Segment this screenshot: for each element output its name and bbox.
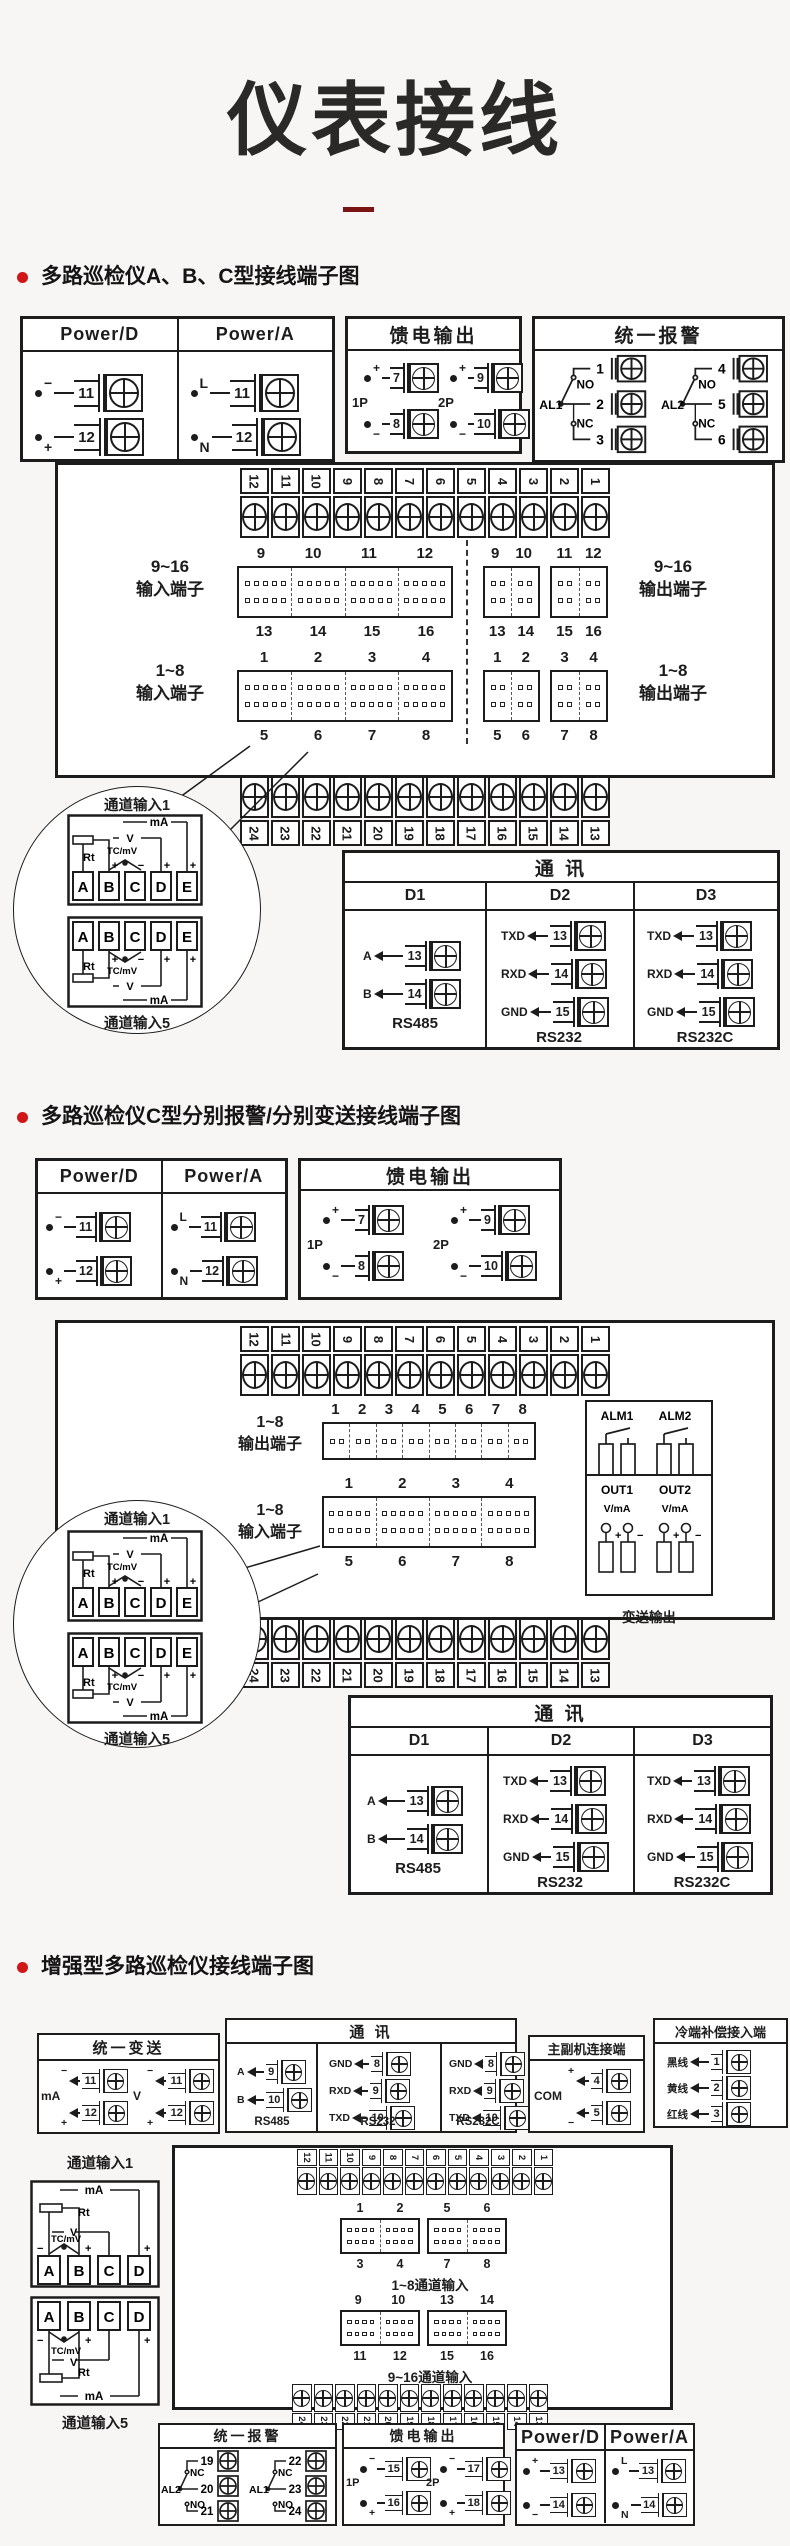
page-title: 仪表接线 [0,56,790,172]
title-underline [343,207,374,212]
s3-alarm-al2: AL2 [161,2484,181,2496]
screw-icon [335,1625,360,1653]
terminal-unit: 3 [491,2149,511,2195]
ma-label: mA [150,817,169,829]
screw-icon [508,2390,525,2407]
s3-feed-2p-label: 2P [426,2477,439,2489]
screw-icon [267,422,297,452]
screw-icon [320,2173,337,2190]
screw-icon [436,1828,459,1851]
ch-term-d: D [156,1595,167,1612]
terminal-unit: 8 [364,1326,393,1396]
terminal-unit: 19 [395,1618,424,1688]
ch-term-d: D [134,2263,145,2280]
screw-icon [459,503,484,531]
s1-in916-label: 9~16输入端子 [108,556,232,602]
s1-comm-rxd-14: RXD14 [499,959,607,989]
s1-comm-a-13: A13 [361,941,461,971]
s2-comm-txd-13b: TXD13 [645,1766,750,1796]
s3-cold-red-3: 红线3 [665,2102,751,2126]
screw-icon [107,2073,124,2090]
s3-ch18-connector-a [340,2218,420,2254]
s3-comm-rxd-9: RXD9 [327,2079,410,2103]
screw-icon [391,2056,408,2073]
terminal-unit: 6 [426,1326,455,1396]
s1-comm-rs232: RS232 [493,1029,625,1046]
screw-icon [411,2461,428,2478]
screw-icon [727,963,750,986]
terminal-unit: 2 [550,468,579,538]
s3-power-d-13: +13 [523,2459,596,2483]
ma-label: mA [150,995,169,1007]
terminal-unit: 12 [240,468,269,538]
screw-icon [105,1216,128,1239]
s3-alarm-al1-nc: NC [278,2468,292,2479]
screw-icon [335,1361,360,1389]
s3-channel5-label: 通道输入5 [30,2412,160,2433]
ch-term-c: C [130,879,141,896]
screw-icon [521,1625,546,1653]
s1-alarm-term-2: 2 [596,397,604,412]
s3-comm-box: 通 讯 A9 B10 RS485 GND8 RXD9 TXD10 RS232 G… [225,2018,517,2133]
s3-alarm-term-20: 20 [201,2484,214,2496]
terminal-unit: 6 [426,468,455,538]
s3-link-box: 主副机连接端 COM +4 −5 [528,2035,645,2133]
terminal-unit: 11 [271,468,300,538]
s3-comm-a-9: A9 [235,2060,306,2084]
s1-out916-label: 9~16输出端子 [618,556,728,602]
s1-feed-terminal-7: +7 [364,363,439,393]
screw-icon [363,2173,380,2190]
v-label: V [126,1549,134,1561]
screw-icon [530,2390,547,2407]
screw-icon [582,1001,605,1024]
terminal-unit: 10 [302,1326,331,1396]
ch-term-c: C [104,2263,115,2280]
screw-icon [459,1361,484,1389]
polarity: + [615,1530,621,1542]
s3-alarm-term-19: 19 [201,2456,214,2468]
ch-term-c: C [130,1645,141,1662]
screw-icon [108,2105,125,2122]
ch-term-a: A [78,929,89,946]
terminal-unit: 8 [364,468,393,538]
screw-icon [465,2390,482,2407]
s2-power-a-col: L11 N12 [163,1194,286,1299]
screw-icon [335,503,360,531]
polarity: + [164,954,170,966]
s1-feed-box: 馈电输出 1P +7 −8 2P +9 −10 [345,316,522,454]
screw-icon [379,2390,396,2407]
screw-icon [412,413,435,436]
s3-alarm-term-22: 22 [289,2456,302,2468]
s1-power-d-title: Power/D [23,319,179,350]
polarity: + [164,1670,170,1682]
bullet-icon [17,1962,28,1973]
screw-icon [193,2073,210,2090]
polarity: − [37,2335,43,2347]
screw-icon [487,2390,504,2407]
screw-icon [105,1260,128,1283]
s1-alarm-al1-no: NO [577,378,595,391]
s1-comm-d2: D2 [485,883,633,911]
ch-term-b: B [74,2263,85,2280]
divider [487,1756,489,1892]
s3-feed-box: 馈电输出 1P −15 +16 2P −17 +18 [342,2423,505,2526]
screw-icon [242,503,267,531]
s2-comm-d2: D2 [487,1728,633,1756]
terminal-unit: 10 [302,468,331,538]
screw-icon [583,783,608,811]
ch-term-c: C [130,1595,141,1612]
s3-alarm-al2-nc: NC [190,2468,204,2479]
terminal-unit: 9 [333,1326,362,1396]
s3-trans-v-11: −11 [145,2069,214,2093]
s1-power-d-terminal-11: −11 [35,374,143,412]
terminal-unit: 2 [550,1326,579,1396]
polarity: + [190,954,196,966]
screw-icon [397,1361,422,1389]
s1-comm-txd-13b: TXD13 [645,921,752,951]
screw-icon [728,1001,751,1024]
s2-in18-label: 1~8输入端子 [222,1500,318,1543]
v-label: V [70,2357,78,2369]
ch-term-e: E [182,1595,192,1612]
s2-comm-gnd-15: GND15 [501,1842,609,1872]
s3-alarm-box: 统一报警 AL2 NC NO 19 20 21 AL1 N [158,2423,337,2526]
screw-icon [273,1625,298,1653]
screw-icon [336,2390,353,2407]
s3-comm-rs232c: RS232C [443,2116,513,2128]
screw-icon [335,783,360,811]
s1-out916-connector-a [483,566,540,618]
screw-icon [731,2106,748,2123]
s3-alarm-al1: AL1 [249,2484,269,2496]
polarity: + [190,1670,196,1682]
s1-feed-1p-label: 1P [352,395,368,410]
s1-alarm-term-5: 5 [718,397,726,412]
s1-in916-bottom-numbers: 13141516 [237,622,453,640]
s2-feed-box: 馈电输出 1P +7 −8 2P +9 −10 [298,1158,562,1300]
s2-comm-a-13: A13 [365,1786,463,1816]
screw-icon [428,1361,453,1389]
s3-ch916-bot-a: 1112 [340,2348,420,2364]
s1-out916-top-numbers-a: 910 [483,544,540,562]
s2-feed-terminal-7: +7 [323,1205,404,1235]
s2-alm2-label: ALM2 [659,1409,692,1423]
ch-term-b: B [104,1595,115,1612]
polarity: − [138,954,144,966]
screw-icon [384,2173,401,2190]
screw-icon [304,1361,329,1389]
screw-icon [109,378,139,408]
screw-icon [285,2064,302,2081]
screw-icon [273,503,298,531]
section1-heading: 多路巡检仪A、B、C型接线端子图 [41,260,360,290]
s1-comm-d3: D3 [633,883,777,911]
screw-icon [521,783,546,811]
terminal-unit: 4 [488,1326,517,1396]
screw-icon [581,1808,604,1831]
screw-icon [265,378,295,408]
s2-power-d-col: −11 +12 [38,1194,163,1299]
terminal-unit: 8 [383,2149,403,2195]
screw-icon [434,945,457,968]
s1-comm-txd-13: TXD13 [499,921,606,951]
screw-icon [358,2390,375,2407]
screw-icon [397,503,422,531]
terminal-unit: 3 [519,468,548,538]
terminal-unit: 9 [362,2149,382,2195]
screw-icon [521,1361,546,1389]
s3-cold-box: 冷端补偿接入端 黑线1 黄线2 红线3 [653,2018,788,2128]
polarity: − [37,2243,43,2255]
terminal-unit: 11 [319,2149,339,2195]
screw-icon [110,422,140,452]
s3-power-a-14: N14 [612,2493,687,2517]
s2-feed-2p-label: 2P [433,1237,449,1252]
screw-icon [496,367,519,390]
screw-icon [401,2390,418,2407]
s1-out18-connector-b [550,670,608,722]
s1-alarm-al1-label: AL1 [539,398,562,412]
terminal-unit: 22 [302,1618,331,1688]
s1-alarm-term-3: 3 [596,432,604,447]
screw-icon [366,503,391,531]
screw-icon [726,1846,749,1869]
s2-comm-rxd-14b: RXD14 [645,1804,751,1834]
s1-comm-gnd-15: GND15 [499,997,609,1027]
polarity: + [112,1670,118,1682]
s3-ch18-top-b: 56 [427,2200,507,2216]
screw-icon [552,1625,577,1653]
s3-top-terminal-strip: 121110987654321 [297,2149,553,2195]
s3-alarm-term-23: 23 [289,2484,302,2496]
terminal-unit: 20 [364,776,393,846]
polarity: + [85,2335,91,2347]
s3-feed-terminal-15: −15 [360,2457,431,2481]
ch-term-d: D [156,1645,167,1662]
s2-power-a-terminal-12: N12 [171,1256,259,1286]
s1-alarm-term-1: 1 [596,362,604,377]
screw-icon [232,1260,255,1283]
s2-power-a-terminal-11: L11 [171,1212,257,1242]
screw-icon [406,2173,423,2190]
ma-label: mA [85,2185,104,2197]
s1-power-a-title: Power/A [179,319,333,350]
ch-term-b: B [104,929,115,946]
polarity: + [190,1576,196,1588]
s1-alarm-al2-label: AL2 [661,398,684,412]
s3-ch916-top-b: 1314 [427,2292,507,2308]
terminal-unit: 13 [581,776,610,846]
s2-channel1-wiring: A B C D E + − + + Rt TC/mV V mA [67,1530,203,1622]
polarity: + [112,1576,118,1588]
s2-channel5-label: 通道输入5 [63,1728,211,1749]
screw-icon [535,2173,552,2190]
s3-cold-title: 冷端补偿接入端 [655,2020,786,2044]
s3-ch18-connector-b [427,2218,507,2254]
s1-alarm-al2-no: NO [698,378,716,391]
s3-power-a-13: L13 [612,2459,686,2483]
s2-comm-box: 通 讯 D1 D2 D3 A13 B14 RS485 TXD13 RXD14 G… [348,1695,773,1895]
screw-icon [397,783,422,811]
s1-alarm-term-4: 4 [718,362,726,377]
s1-comm-b-14: B14 [361,979,461,1009]
screw-icon [428,1625,453,1653]
s2-comm-rs232: RS232 [495,1874,625,1891]
screw-icon [490,503,515,531]
s2-comm-rs485: RS485 [359,1860,477,1877]
screw-icon [366,783,391,811]
s1-out18-bottom-numbers-b: 78 [550,726,608,744]
s1-channel5-label: 通道输入5 [63,1012,211,1033]
screw-icon [583,503,608,531]
tc-label: TC/mV [107,1562,138,1573]
s3-feed-1p-label: 1P [346,2477,359,2489]
s2-comm-b-14: B14 [365,1824,463,1854]
s3-comm-title: 通 讯 [227,2020,515,2044]
s3-trans-ma-12: +12 [59,2101,128,2125]
s2-feed-title: 馈电输出 [301,1161,559,1191]
s3-channel1-label: 通道输入1 [40,2152,160,2173]
terminal-unit: 4 [469,2149,489,2195]
ch-term-e: E [182,879,192,896]
s2-comm-d1: D1 [351,1728,487,1756]
terminal-unit: 23 [271,1618,300,1688]
screw-icon [273,1361,298,1389]
screw-icon [377,1209,400,1232]
terminal-unit: 14 [550,776,579,846]
s2-top-terminal-strip: 121110987654321 [240,1326,610,1396]
s3-power-d-col: +13 −14 [517,2451,606,2523]
screw-icon [723,1770,746,1793]
screw-icon [428,503,453,531]
s3-comm-gnd-8: GND8 [327,2052,411,2076]
s3-comm-rs485: RS485 [231,2116,313,2128]
s1-out916-bottom-numbers-a: 1314 [483,622,540,640]
s3-comm-gnd-8b: GND8 [447,2052,525,2076]
polarity: − [695,1530,701,1542]
ch-term-e: E [182,929,192,946]
s1-comm-rxd-14b: RXD14 [645,959,753,989]
s1-power-box: Power/D Power/A −11 +12 L11 N12 [20,316,335,462]
terminal-unit: 11 [271,1326,300,1396]
screw-icon [503,1209,526,1232]
polarity: + [190,860,196,872]
v-label: V [126,833,134,845]
screw-icon [611,2073,628,2090]
s1-out916-top-numbers-b: 1112 [550,544,608,562]
rt-label: Rt [83,852,95,864]
terminal-unit: 12 [240,1326,269,1396]
s3-cold-yellow-2: 黄线2 [665,2076,751,2100]
s2-feed-1p-label: 1P [307,1237,323,1252]
terminal-unit: 21 [333,1618,362,1688]
screw-icon [315,2390,332,2407]
s1-alarm-relays: AL1 NO NC 1 2 3 AL2 NO NC 4 5 6 [535,351,782,458]
terminal-unit: 5 [457,468,486,538]
polarity: − [637,1530,643,1542]
terminal-unit: 1 [581,1326,610,1396]
polarity: − [138,860,144,872]
screw-icon [611,2105,628,2122]
screw-icon [341,2173,358,2190]
s2-bottom-terminal-strip: 242322212019181716151413 [240,1618,610,1688]
screw-icon [377,1255,400,1278]
screw-icon [298,2173,315,2190]
screw-icon [304,1625,329,1653]
screw-icon [576,2463,593,2480]
s3-power-a-title: Power/A [606,2425,693,2449]
s1-power-d-col: −11 +12 [23,352,179,461]
s3-power-d-title: Power/D [517,2425,606,2449]
screw-icon [412,367,435,390]
s1-feed-title: 馈电输出 [348,319,519,351]
terminal-unit: 6 [426,2149,446,2195]
terminal-unit: 15 [519,1618,548,1688]
screw-icon [422,2390,439,2407]
s1-out916-bottom-numbers-b: 1516 [550,622,608,640]
s3-feed-title: 馈电输出 [344,2425,503,2449]
s3-trans-box: 统一变送 mA −11 +12 V −11 +12 [37,2033,220,2134]
rt-label: Rt [83,961,95,973]
screw-icon [583,1361,608,1389]
s1-alarm-al1-nc: NC [577,418,594,431]
ch-term-c: C [104,2309,115,2326]
divider [440,2044,442,2131]
s2-feed-terminal-10: −10 [451,1251,537,1281]
ma-label: mA [150,1533,169,1545]
polarity: + [112,954,118,966]
s1-out18-top-numbers-a: 12 [483,648,540,666]
s1-top-terminal-strip: 121110987654321 [240,468,610,538]
s3-power-a-col: L13 N14 [606,2451,693,2523]
terminal-unit: 5 [448,2149,468,2195]
s3-channel1-wiring: A B C D − + + Rt TC/mV V mA [30,2180,160,2288]
s3-ch18-bot-b: 78 [427,2256,507,2272]
divider-dashed [466,540,468,744]
s1-power-d-terminal-12: +12 [35,418,144,456]
s1-channel1-wiring: A B C D E + − + + Rt TC/mV V mA [67,814,203,906]
s2-comm-d3: D3 [633,1728,770,1756]
screw-icon [397,1625,422,1653]
bullet-icon [17,272,28,283]
screw-icon [731,2080,748,2097]
s3-ch916-top-a: 910 [340,2292,420,2308]
screw-icon [411,2495,428,2512]
s2-out18-numbers: 12345678 [322,1400,536,1418]
terminal-unit: 18 [426,1618,455,1688]
s2-out18-connector [322,1422,536,1460]
s3-ch916-label: 9~16通道输入 [350,2366,510,2386]
screw-icon [436,1790,459,1813]
s1-in18-label: 1~8输入端子 [108,660,232,706]
screw-icon [503,413,526,436]
s2-out18-label: 1~8输出端子 [222,1412,318,1455]
screw-icon [725,1808,748,1831]
s3-alarm-term-21: 21 [201,2506,214,2518]
terminal-unit: 12 [297,2149,317,2195]
s1-out18-bottom-numbers-a: 56 [483,726,540,744]
rt-label: Rt [83,1677,95,1689]
s2-power-d-title: Power/D [38,1161,163,1192]
tc-label: TC/mV [107,1682,138,1693]
s3-trans-title: 统一变送 [39,2035,218,2061]
s3-feed-terminal-16: +16 [360,2491,431,2515]
s1-out18-connector-a [483,670,540,722]
rt-label: Rt [83,1568,95,1580]
